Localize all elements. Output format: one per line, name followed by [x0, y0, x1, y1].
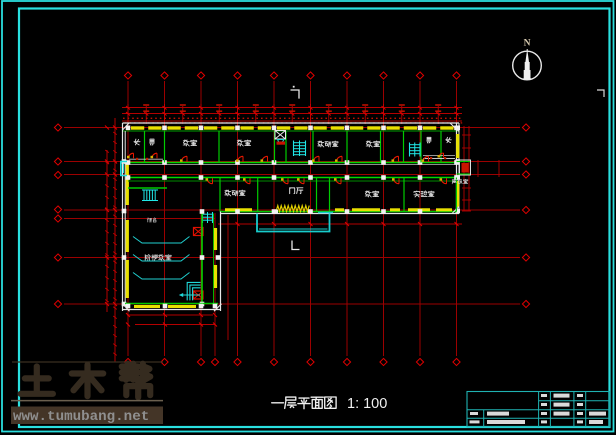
- svg-text:1: 100: 1: 100: [347, 396, 387, 412]
- svg-text:www.tumubang.net: www.tumubang.net: [13, 409, 149, 425]
- svg-text:N: N: [524, 39, 531, 49]
